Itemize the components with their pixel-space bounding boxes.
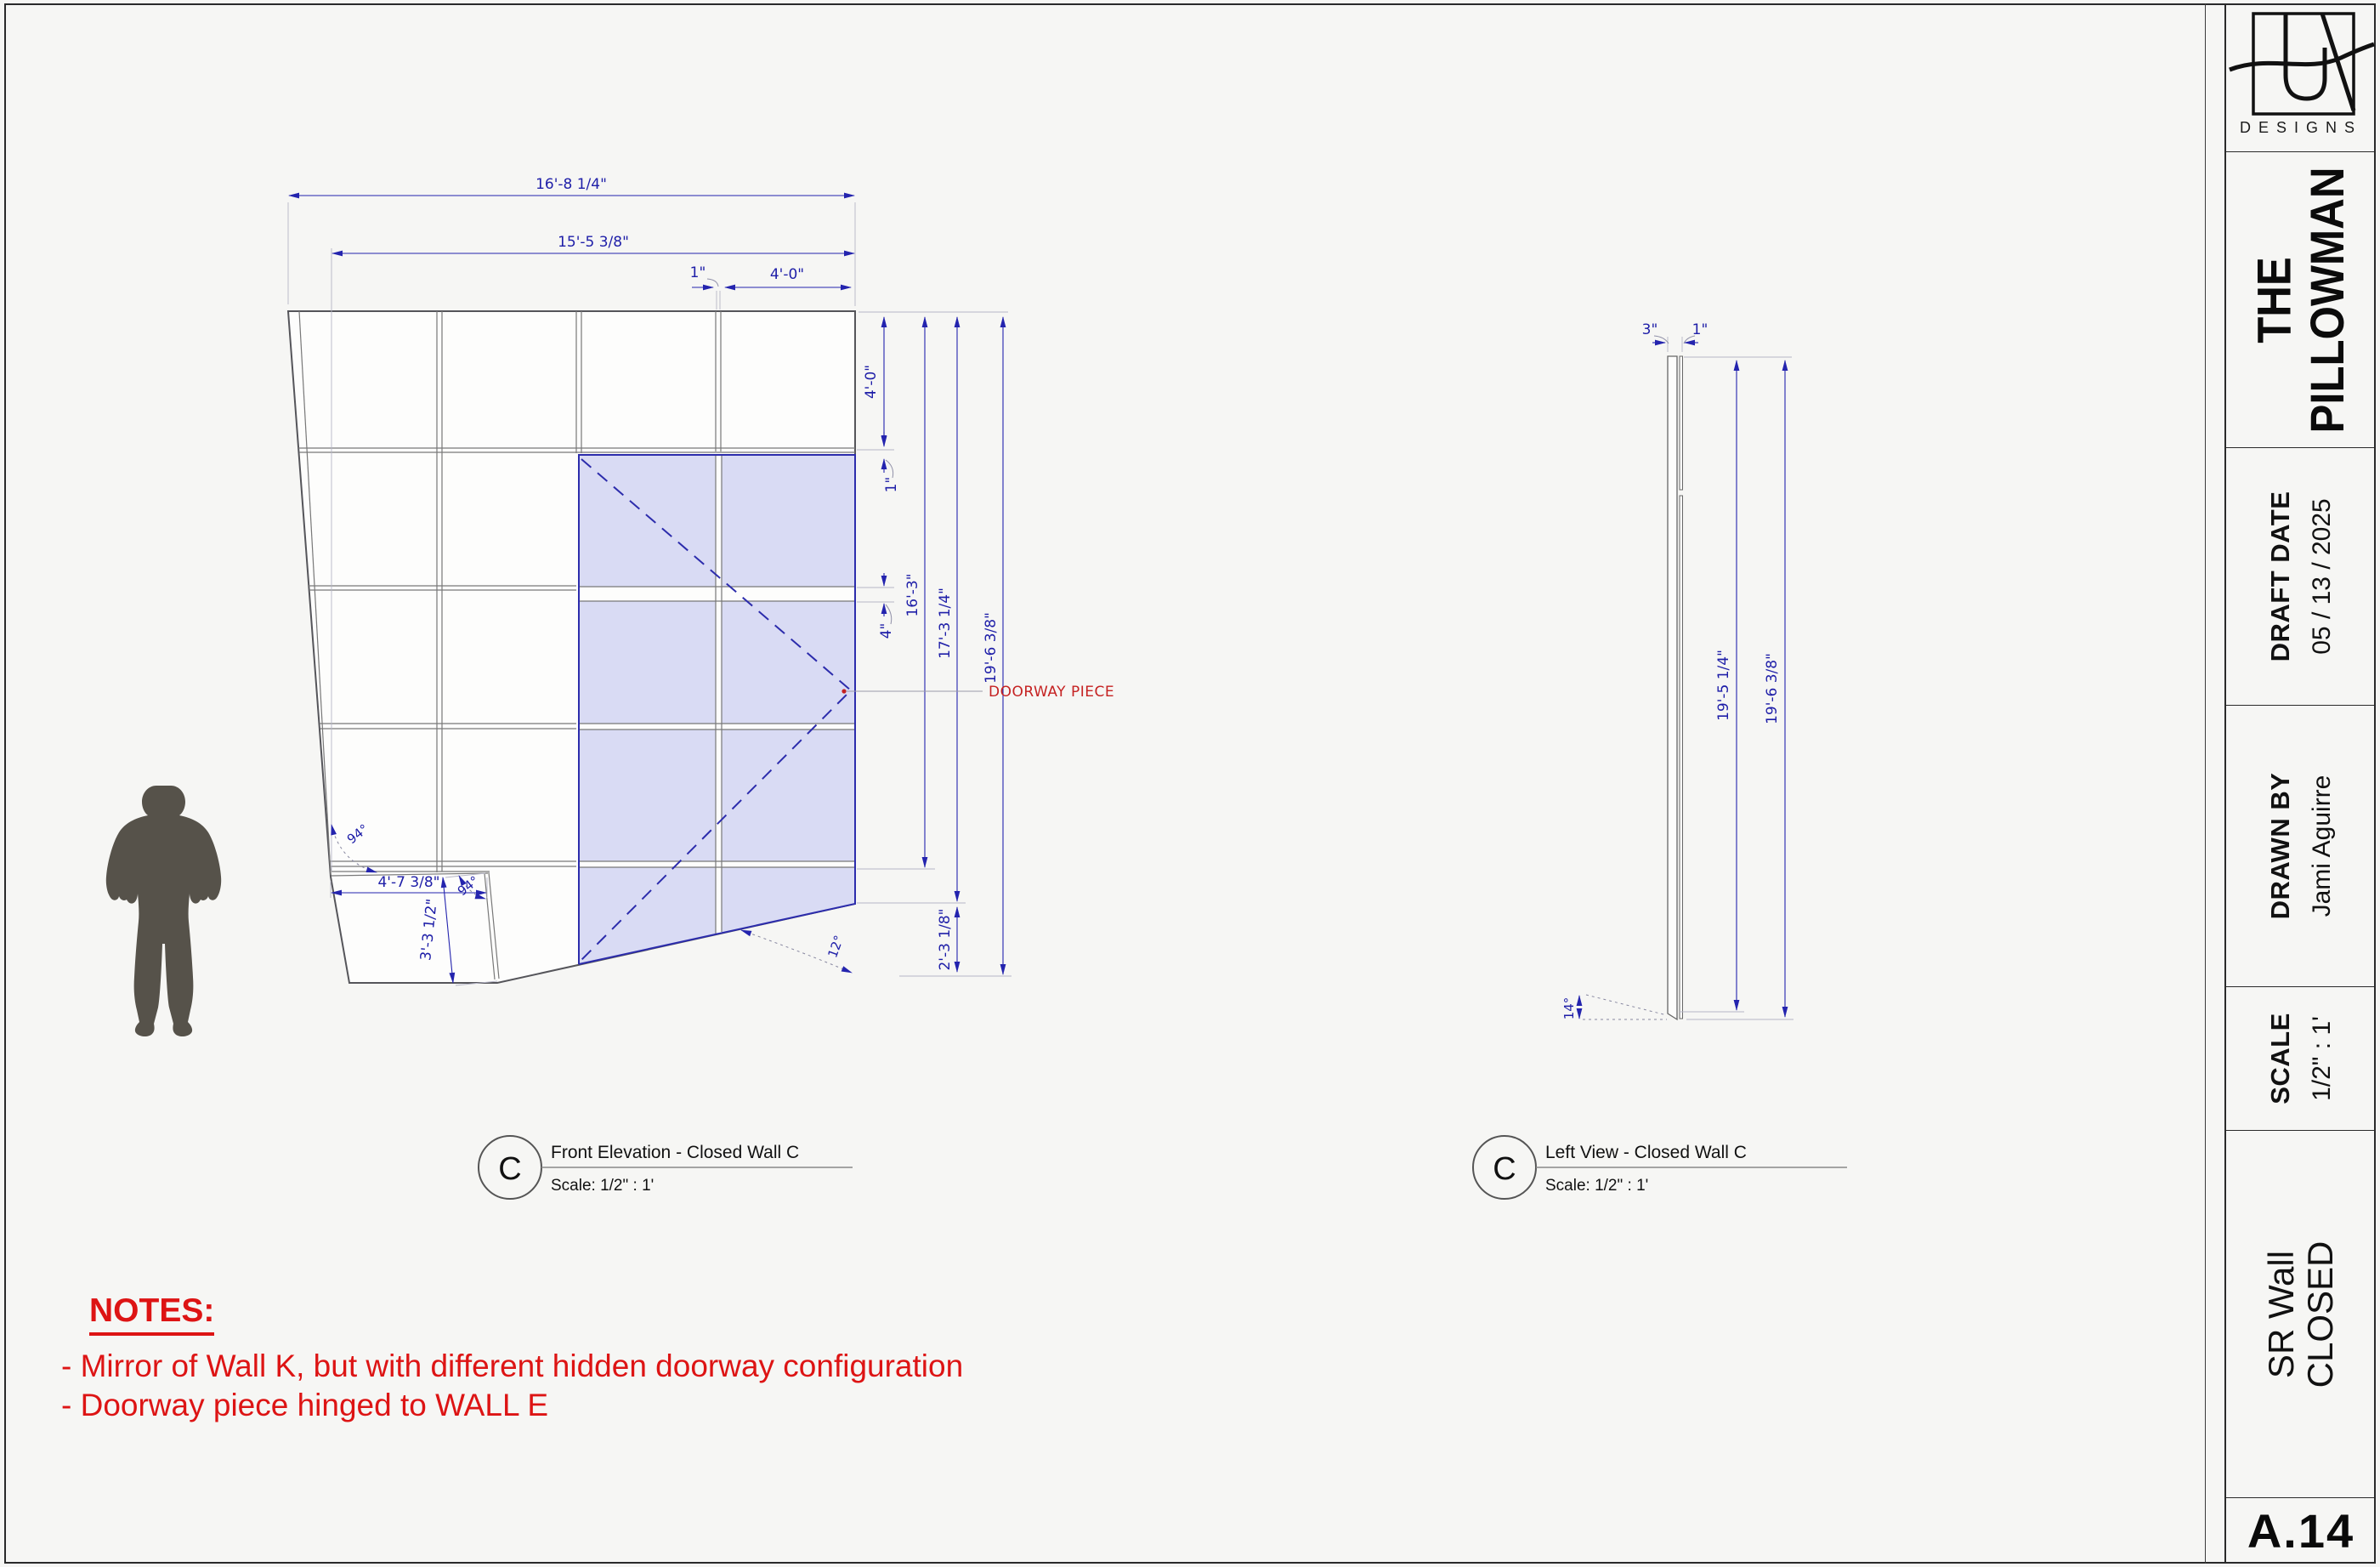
drawing-sheet: 16'-8 1/4" 15'-5 3/8" 1" 4'-0" 4'-0" 1" … <box>0 0 2380 1567</box>
lv-dim-thickness-wall: 3" <box>1642 321 1658 338</box>
title-block-logo-section: DESIGNS <box>2226 3 2376 152</box>
title-block-divider <box>2205 3 2206 1564</box>
title-block-sheet-number-section: A.14 <box>2226 1498 2376 1564</box>
dim-right-gap: 1" <box>883 477 900 493</box>
front-elevation-view: 16'-8 1/4" 15'-5 3/8" 1" 4'-0" 4'-0" 1" … <box>288 176 1114 985</box>
left-view-title-group: C Left View - Closed Wall C Scale: 1/2" … <box>1473 1136 1847 1199</box>
front-view-tag: C <box>498 1151 521 1187</box>
draft-date-label: DRAFT DATE <box>2265 491 2296 662</box>
title-block-scale-section: SCALE 1/2" : 1' <box>2226 987 2376 1131</box>
scale-value: 1/2" : 1' <box>2308 1016 2337 1101</box>
draft-date-value: 05 / 13 / 2025 <box>2308 498 2337 655</box>
front-view-title-group: C Front Elevation - Closed Wall C Scale:… <box>479 1136 853 1199</box>
sheet-name-line1: SR Wall <box>2262 1241 2301 1388</box>
sheet-number: A.14 <box>2226 1498 2376 1564</box>
title-block: DESIGNS THE PILLOWMAN DRAFT DATE 05 / 13… <box>2224 3 2376 1564</box>
front-view-title: Front Elevation - Closed Wall C <box>551 1143 799 1162</box>
left-view-title: Left View - Closed Wall C <box>1545 1143 1747 1162</box>
brand-text: DESIGNS <box>2226 119 2376 137</box>
human-scale-figure <box>106 786 221 1036</box>
project-title-line2: PILLOWMAN <box>2301 167 2354 433</box>
dim-mid-gap: 4" <box>878 623 895 639</box>
scale-label: SCALE <box>2265 1013 2296 1104</box>
doorway-leader-dot <box>841 689 846 693</box>
dim-inner-width: 15'-5 3/8" <box>558 234 629 251</box>
notes-heading: NOTES: <box>89 1292 214 1336</box>
dim-height-mid: 17'-3 1/4" <box>937 588 954 659</box>
wall-section-main <box>1668 356 1677 1019</box>
lv-dim-height-inner: 19'-5 1/4" <box>1715 650 1732 721</box>
sheet-name-line2: CLOSED <box>2301 1241 2340 1388</box>
title-block-project-section: THE PILLOWMAN <box>2226 152 2376 448</box>
front-view-scale: Scale: 1/2" : 1' <box>551 1177 654 1195</box>
left-view-angle-lines <box>1583 995 1667 1019</box>
dim-overall-width: 16'-8 1/4" <box>535 176 607 193</box>
lv-dim-thickness-piece: 1" <box>1692 321 1708 338</box>
dim-right-panel: 4'-0" <box>863 365 880 399</box>
dim-height-inner: 16'-3" <box>904 573 921 616</box>
left-view-tag: C <box>1493 1151 1516 1187</box>
angle-bottom: 12° <box>824 934 847 960</box>
project-title-line1: THE <box>2248 167 2301 433</box>
notes-item-2: - Doorway piece hinged to WALL E <box>61 1387 963 1424</box>
dim-bottom-right: 2'-3 1/8" <box>937 908 954 970</box>
dim-top-gap: 1" <box>690 264 706 281</box>
title-block-draft-date-section: DRAFT DATE 05 / 13 / 2025 <box>2226 448 2376 706</box>
dim-height-overall: 19'-6 3/8" <box>983 612 1000 684</box>
wall-section-piece-lower <box>1680 496 1683 1019</box>
title-block-sheet-name-section: SR Wall CLOSED <box>2226 1131 2376 1498</box>
notes-item-1: - Mirror of Wall K, but with different h… <box>61 1348 963 1385</box>
lv-dim-height-overall: 19'-6 3/8" <box>1764 653 1781 724</box>
notes-block: NOTES: - Mirror of Wall K, but with diff… <box>61 1292 963 1425</box>
wall-section-piece-upper <box>1680 356 1683 490</box>
left-view-scale: Scale: 1/2" : 1' <box>1545 1177 1648 1195</box>
drawn-by-value: Jami Aguirre <box>2308 775 2337 917</box>
title-block-drawn-by-section: DRAWN BY Jami Aguirre <box>2226 706 2376 987</box>
lv-angle-bottom: 14° <box>1561 997 1577 1020</box>
doorway-piece-label: DOORWAY PIECE <box>989 684 1114 701</box>
dim-top-panel: 4'-0" <box>770 266 804 283</box>
drawn-by-label: DRAWN BY <box>2265 773 2296 920</box>
left-view: 3" 1" 19'-5 1/4" 19'-6 3/8" 14° <box>1561 321 1793 1019</box>
dim-bottom-width: 4'-7 3/8" <box>377 874 439 891</box>
